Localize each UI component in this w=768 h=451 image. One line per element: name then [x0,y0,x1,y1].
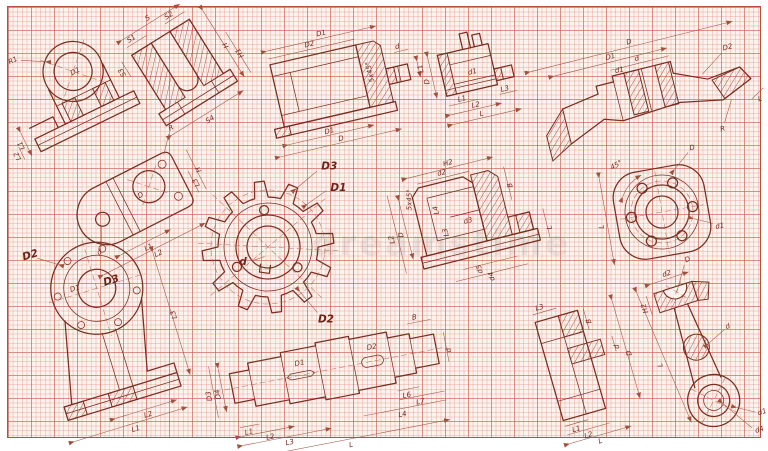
dim-label: S [144,13,152,22]
dim-label: S3 [117,67,129,79]
dim-label: D2 [366,342,378,352]
dim-label: S4 [204,114,216,126]
dim-label: d1 [715,221,725,230]
dim-label: D [338,134,346,143]
dim-label: d5 [475,263,485,274]
dim-label: L4 [398,410,408,419]
dim-label: L1 [416,64,426,74]
dim-label: d [634,54,641,63]
dim-label: H2 [442,158,454,168]
dim-label: d2 [436,168,447,178]
part-pedestal-bracket: D2 D1 D3 L3 L2 L1 [17,213,208,451]
dim-label: D1 [69,283,81,294]
part-spur-gear: D3 D1 d D2 [189,143,357,328]
dim-label: d [239,256,247,268]
part-stepped-shaft: D4 D3 D1 D2 d B L1 L2 L3 L6 L7 L4 L [197,307,467,451]
dim-label: d1 [757,407,768,417]
dim-label: R [167,123,175,132]
part-stepped-bushing: D d1 L1 L3 L2 L [414,24,521,129]
dim-label: L [348,441,353,450]
dim-label: H [193,165,203,174]
dim-label: S1 [126,33,138,45]
dim-label: B [411,313,417,322]
dim-label: L3 [534,303,544,313]
dim-label: L [597,437,603,446]
dim-label: L [597,224,606,229]
dim-label: D [624,349,633,357]
part-bolted-flange: 45° D d1 L [586,141,727,267]
dim-label: L [656,362,665,368]
dim-label: L1 [131,424,141,434]
dim-label: L3 [191,177,202,188]
dim-label: L3 [285,438,295,447]
technical-drawings-layer: R1 D1 L1 L2 S S1 S2 S3 H [0,0,768,451]
dim-label: L1 [571,424,581,434]
part-fork-bracket: S S1 S2 S3 H H1 S4 [100,0,267,151]
dim-label: D3 [102,273,121,289]
dim-label: D1 [294,358,305,368]
dim-label: L [479,110,485,119]
dim-label: L6 [402,390,412,400]
dim-label: D1 [324,126,335,136]
part-lever-shaft: D D1 d d1 D2 L R [528,9,768,174]
angle-label: 45° [609,159,624,172]
dim-label: D [625,37,633,46]
dim-label: D2 [21,247,40,263]
dim-label: D2 [304,39,316,49]
dim-label: d [612,343,621,350]
dim-label: d1 [467,67,477,77]
dim-label: D1 [605,52,616,62]
dim-label: D3 [321,161,337,173]
dim-label: L2 [265,432,275,442]
dim-label: d4 [754,425,765,435]
dim-label: L3 [169,310,179,320]
dim-label: L4 [431,205,441,215]
dim-label: D2 [722,42,734,52]
dim-label: d [394,42,401,51]
dim-label: L2 [387,234,397,245]
chamfer-label: 5x45° [405,189,413,210]
dim-label: L7 [415,397,425,407]
dim-label: d [724,322,731,331]
dim-label: d [444,347,453,353]
part-connecting-rod: d2 D H2 d L d1 d4 [627,247,768,451]
part-stepped-block: L3 B d D L1 L2 L [530,282,655,451]
dim-label: D2 [318,314,334,326]
part-eye-bracket: R1 D1 L1 L2 [0,15,140,163]
dim-label: D1 [330,182,346,194]
dim-label: D [684,255,692,264]
dim-label: d4 [487,271,497,282]
dim-label: L3 [441,227,451,237]
dim-label: D [422,78,431,86]
part-flanged-bushing: D1 D2 d L1 5x45° D1 D [255,9,437,157]
dim-label: D1 [315,28,326,38]
dim-label: B [584,318,593,325]
dim-label: B [506,182,515,189]
graph-paper-sheet: dreamstime R1 D1 L [0,0,768,451]
dim-label: S2 [163,10,175,22]
part-flanged-housing: H2 d2 B 5x45° D L2 d3 L3 L4 d5 d4 L [372,138,562,303]
dim-label: L2 [143,410,154,420]
dim-label: d3 [463,216,474,226]
dim-label: D [689,143,696,152]
dim-label: L [545,224,554,230]
dim-label: D1 [69,66,81,78]
dim-label: L [757,95,763,104]
dim-label: L2 [583,430,594,440]
dim-label: R1 [7,55,19,66]
dim-label: L2 [153,248,165,259]
dim-label: R [719,124,726,133]
